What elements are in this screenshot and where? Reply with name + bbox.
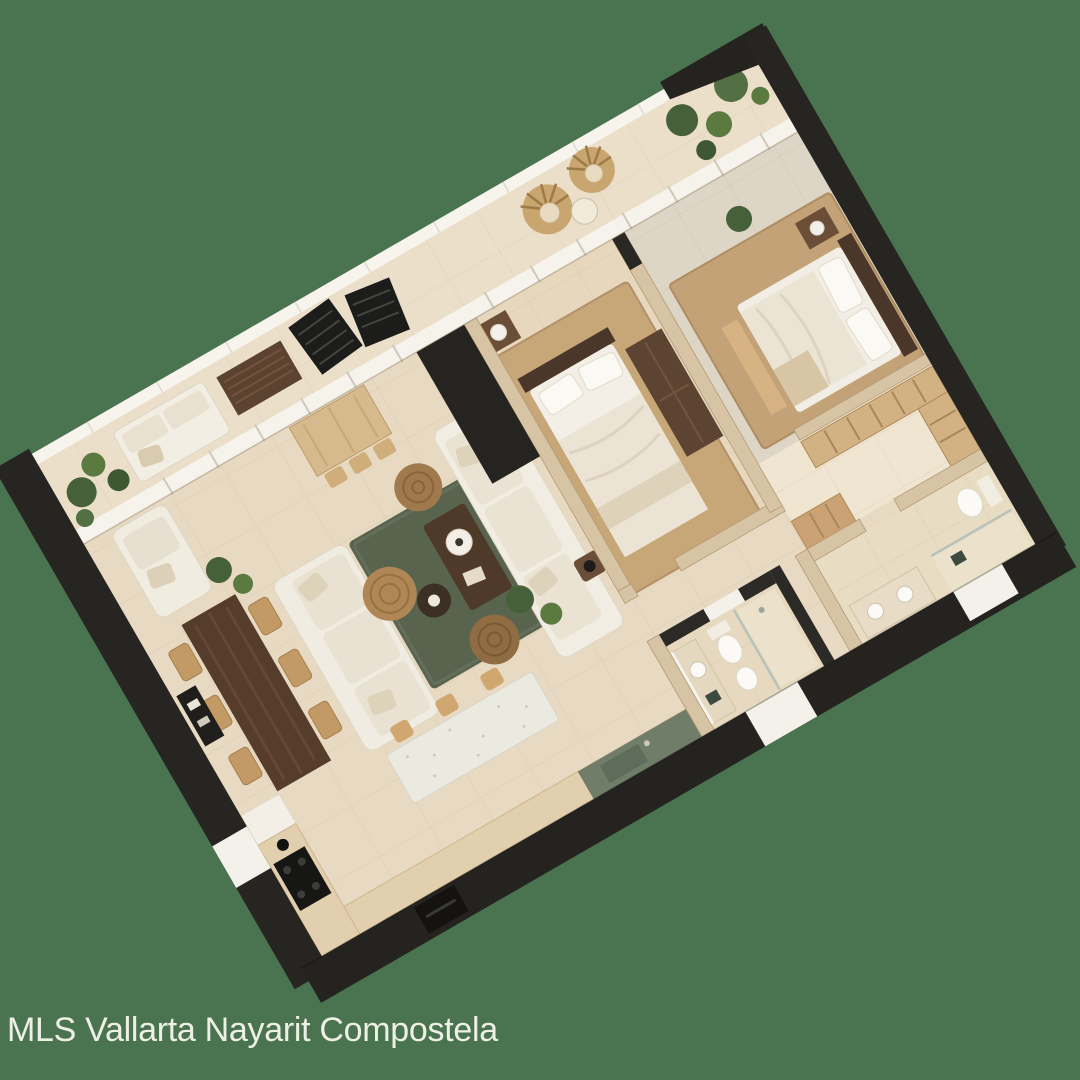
scene <box>0 0 1080 1080</box>
watermark: MLS Vallarta Nayarit Compostela <box>7 1011 498 1050</box>
